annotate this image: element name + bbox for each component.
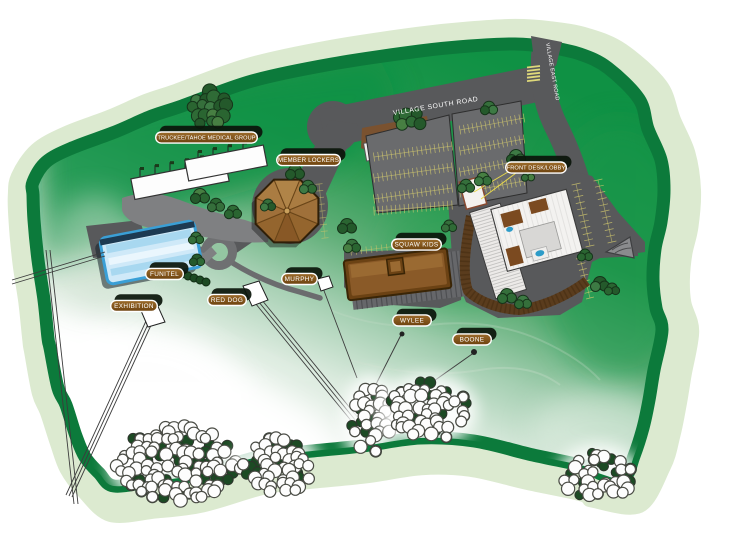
svg-text:MURPHY: MURPHY: [285, 276, 315, 283]
svg-text:FRONT DESK/LOBBY: FRONT DESK/LOBBY: [507, 166, 566, 172]
svg-text:BOONE: BOONE: [460, 337, 485, 344]
svg-text:EXHIBITION: EXHIBITION: [114, 303, 154, 310]
svg-text:MEMBER LOCKERS: MEMBER LOCKERS: [278, 157, 339, 164]
svg-text:WYLEE: WYLEE: [400, 318, 424, 325]
svg-text:FUNITEL: FUNITEL: [150, 271, 179, 278]
svg-text:SQUAW KIDS: SQUAW KIDS: [394, 242, 438, 249]
svg-text:RED DOG: RED DOG: [211, 297, 243, 304]
svg-text:TRUCKEE/TAHOE MEDICAL GROUP: TRUCKEE/TAHOE MEDICAL GROUP: [157, 136, 255, 142]
